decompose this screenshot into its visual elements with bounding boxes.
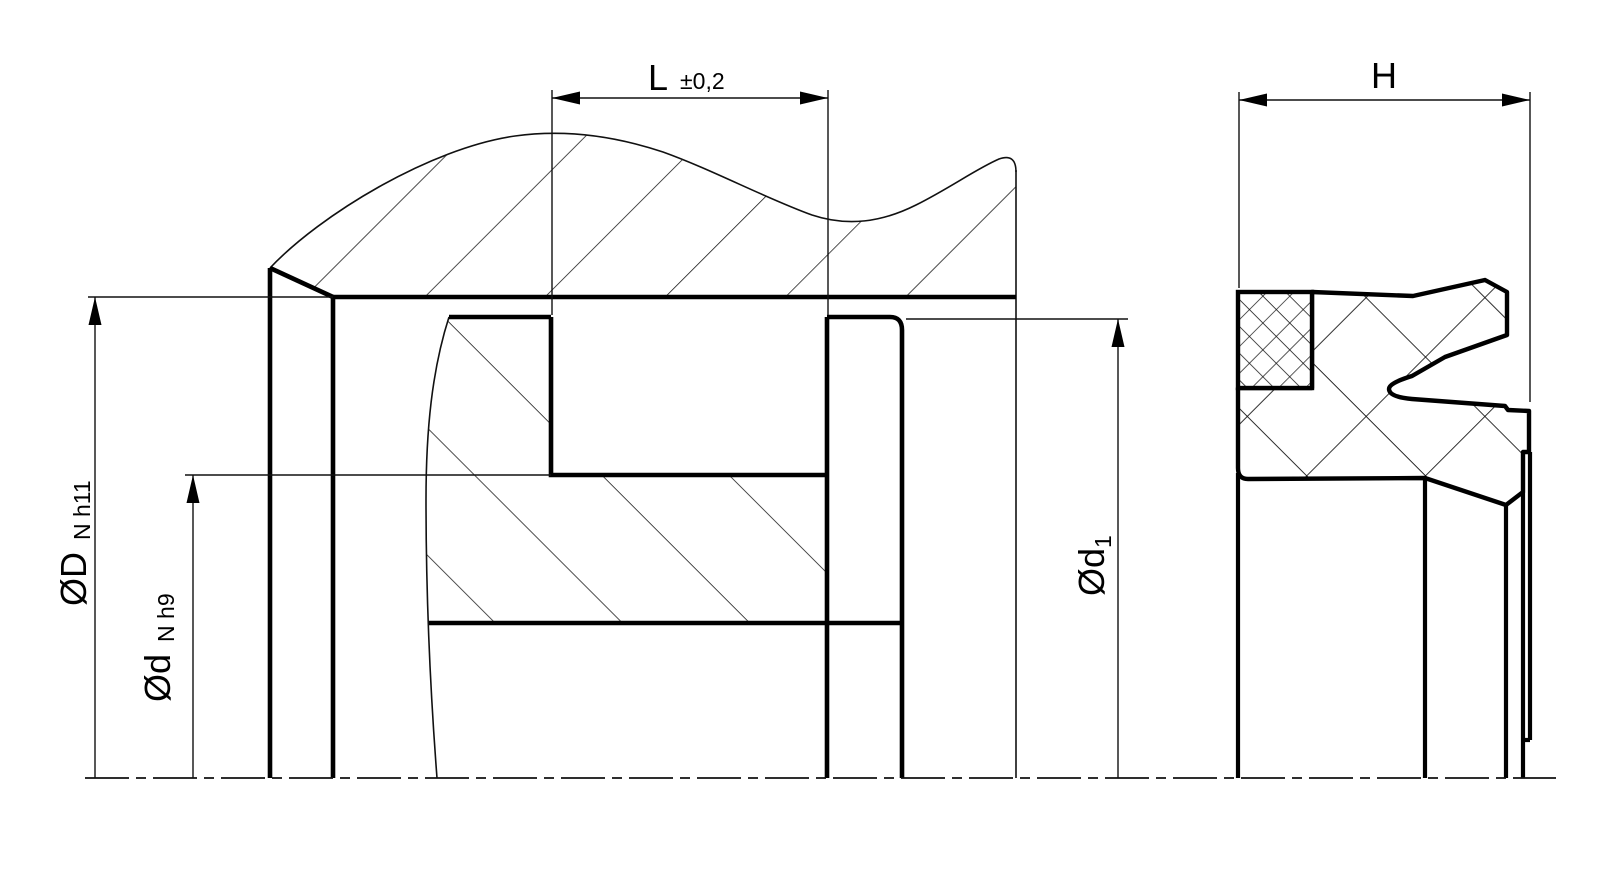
backup-ring-area xyxy=(1238,292,1312,388)
seal-technical-drawing: L±0,2 ØDN h11 ØdN h9 Ød1 xyxy=(0,0,1608,876)
dim-label-H: H xyxy=(1371,55,1397,96)
engineering-drawing-page: L±0,2 ØDN h11 ØdN h9 Ød1 xyxy=(0,0,1608,876)
